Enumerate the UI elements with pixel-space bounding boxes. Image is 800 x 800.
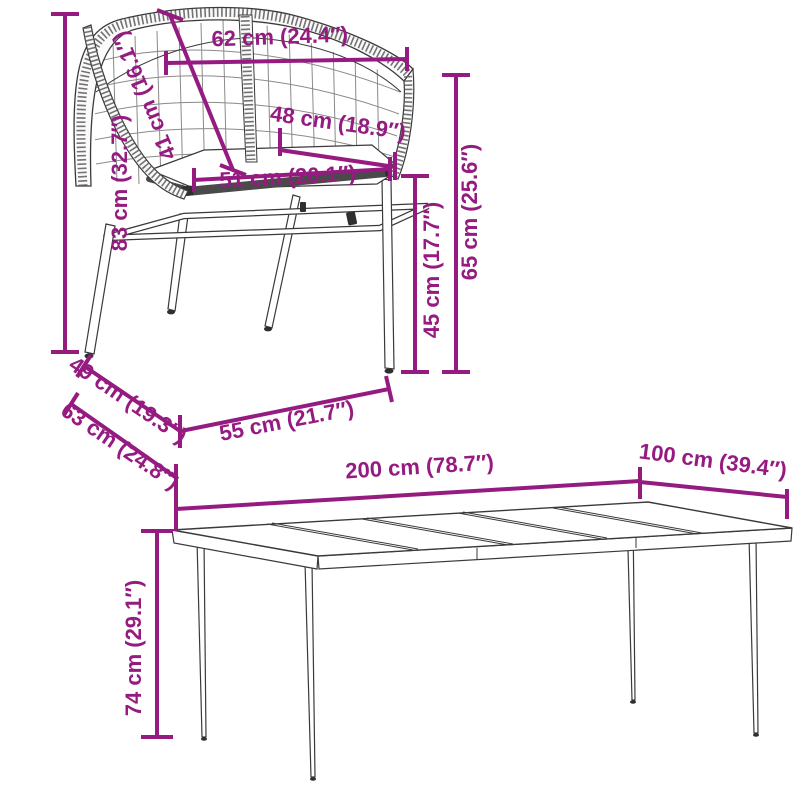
chair-back-left-leg [168,214,188,311]
dim-label-45: 45 cm (17.7″) [419,202,444,339]
table-front-left-foot [310,777,316,781]
table-front-right-leg [749,536,758,733]
dim-label-83: 83 cm (32.7″) [107,115,132,252]
product-dimension-diagram: 62 cm (24.4″) 41 cm (16.1″) 83 cm (32.7″… [0,0,800,800]
table-front-left-leg [305,562,315,777]
table-front-right-foot [753,733,759,737]
table-back-left-foot [201,737,207,741]
stretcher-bracket-small [300,202,306,212]
dimension-armrest-height: 65 cm (25.6″) [442,75,482,372]
dim-label-100: 100 cm (39.4″) [638,438,789,482]
dim-label-48: 48 cm (18.9″) [269,101,408,145]
stretcher-bracket [346,211,358,226]
chair-back-right-foot [264,327,272,332]
dimension-base-width: 55 cm (21.7″) [180,376,392,448]
diagram-svg: 62 cm (24.4″) 41 cm (16.1″) 83 cm (32.7″… [0,0,800,800]
dim-label-74: 74 cm (29.1″) [121,580,146,717]
dim-label-200: 200 cm (78.7″) [345,449,495,483]
dimension-table-height: 74 cm (29.1″) [121,531,173,737]
dim-label-65: 65 cm (25.6″) [457,144,482,281]
table-illustration [172,502,792,781]
dim-label-62: 62 cm (24.4″) [211,22,348,52]
dim-line-83 [51,14,79,352]
table-back-right-foot [630,700,636,704]
chair-back-left-foot [167,310,175,315]
dim-label-55: 55 cm (21.7″) [217,395,356,446]
chair-front-right-foot [385,368,394,373]
table-back-left-leg [197,540,206,737]
